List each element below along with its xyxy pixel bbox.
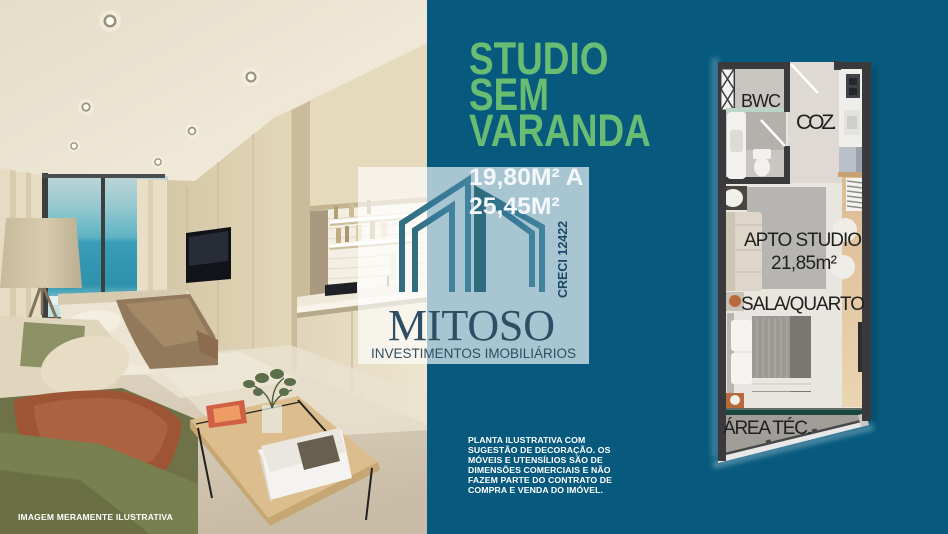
- svg-text:INVESTIMENTOS IMOBILIÁRIOS: INVESTIMENTOS IMOBILIÁRIOS: [371, 346, 576, 361]
- svg-text:SALA/QUARTO: SALA/QUARTO: [741, 294, 865, 315]
- svg-text:IMAGEM MERAMENTE ILUSTRATIVA: IMAGEM MERAMENTE ILUSTRATIVA: [18, 512, 173, 522]
- svg-text:COZ.: COZ.: [796, 111, 837, 134]
- svg-text:APTO STUDIO: APTO STUDIO: [744, 230, 862, 251]
- svg-text:ÁREA TÉC.: ÁREA TÉC.: [723, 418, 812, 439]
- svg-text:MITOSO: MITOSO: [388, 301, 555, 350]
- svg-text:21,85m²: 21,85m²: [771, 253, 837, 274]
- svg-text:BWC: BWC: [741, 91, 781, 111]
